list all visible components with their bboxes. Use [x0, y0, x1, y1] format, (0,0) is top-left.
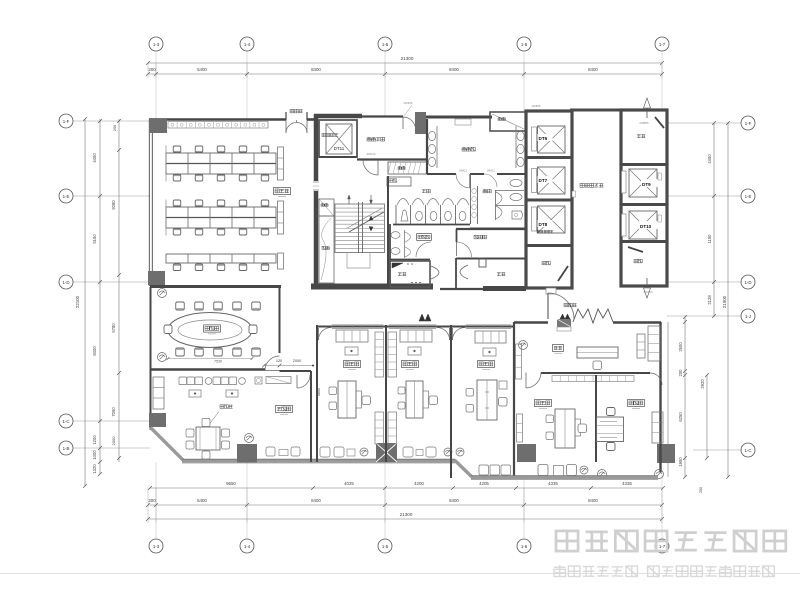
svg-text:1150: 1150: [707, 234, 712, 244]
svg-text:1-3: 1-3: [153, 544, 160, 549]
svg-text:2920: 2920: [700, 379, 705, 389]
svg-text:JPA9C5: JPA9C5: [643, 290, 653, 294]
svg-text:2W625: 2W625: [404, 101, 413, 105]
svg-text:DT6: DT6: [539, 136, 548, 141]
svg-text:22100: 22100: [75, 295, 80, 308]
svg-text:200: 200: [148, 67, 156, 72]
svg-text:DT8: DT8: [539, 222, 548, 227]
svg-text:4025: 4025: [344, 481, 354, 486]
svg-text:2WB25: 2WB25: [639, 121, 649, 125]
svg-text:1-F: 1-F: [63, 119, 70, 124]
svg-text:DT10: DT10: [640, 224, 652, 229]
svg-text:5150: 5150: [92, 234, 97, 244]
svg-text:2000: 2000: [293, 359, 301, 363]
svg-text:8400: 8400: [311, 67, 321, 72]
svg-text:5400: 5400: [197, 498, 207, 503]
svg-text:DT11: DT11: [334, 146, 345, 151]
svg-text:200: 200: [113, 125, 117, 131]
svg-text:8400: 8400: [588, 67, 598, 72]
svg-text:1-E: 1-E: [63, 194, 70, 199]
svg-text:1-6: 1-6: [521, 42, 528, 47]
svg-text:DT9: DT9: [642, 182, 651, 187]
svg-text:4450: 4450: [92, 153, 97, 163]
svg-text:1-B: 1-B: [63, 446, 70, 451]
svg-text:8400: 8400: [449, 67, 459, 72]
svg-text:2W825: 2W825: [532, 104, 541, 108]
svg-text:1-6: 1-6: [521, 544, 528, 549]
svg-text:1320: 1320: [92, 464, 97, 474]
svg-text:1-4: 1-4: [244, 42, 251, 47]
svg-text:1200: 1200: [92, 435, 97, 445]
svg-text:7050: 7050: [111, 407, 116, 417]
svg-text:8400: 8400: [92, 346, 97, 356]
svg-text:1950: 1950: [678, 457, 683, 467]
svg-text:WM21: WM21: [459, 169, 468, 173]
svg-text:1-E: 1-E: [745, 194, 752, 199]
svg-text:1-D: 1-D: [744, 280, 751, 285]
svg-text:21900: 21900: [722, 295, 727, 308]
svg-text:4335: 4335: [548, 481, 558, 486]
svg-text:6250: 6250: [678, 412, 683, 422]
svg-text:1-J: 1-J: [745, 314, 751, 319]
svg-text:WM21: WM21: [487, 169, 496, 173]
svg-text:8400: 8400: [311, 498, 321, 503]
svg-text:1-4: 1-4: [244, 544, 251, 549]
svg-text:5780: 5780: [111, 323, 116, 333]
svg-text:8400: 8400: [449, 498, 459, 503]
svg-text:2128: 2128: [707, 295, 712, 305]
svg-text:9280: 9280: [111, 200, 116, 210]
svg-text:1-3: 1-3: [153, 42, 160, 47]
svg-text:1000: 1000: [92, 450, 97, 460]
svg-text:4200: 4200: [414, 481, 424, 486]
svg-text:2600: 2600: [678, 342, 683, 352]
svg-text:1-5: 1-5: [382, 42, 389, 47]
svg-text:120: 120: [276, 359, 282, 363]
svg-text:1-5: 1-5: [382, 544, 389, 549]
svg-text:8400: 8400: [588, 498, 598, 503]
svg-text:4335: 4335: [622, 481, 632, 486]
svg-text:4205: 4205: [479, 481, 489, 486]
svg-text:5400: 5400: [197, 67, 207, 72]
svg-text:200: 200: [678, 369, 683, 377]
svg-text:4450: 4450: [707, 154, 712, 164]
svg-text:1-F: 1-F: [745, 121, 752, 126]
svg-text:1-D: 1-D: [62, 280, 69, 285]
svg-text:1-C: 1-C: [62, 419, 69, 424]
svg-text:9650: 9650: [226, 481, 236, 486]
svg-text:21300: 21300: [400, 512, 413, 517]
svg-text:1-C: 1-C: [744, 448, 751, 453]
svg-text:2000: 2000: [111, 436, 116, 446]
svg-text:ZW113: ZW113: [367, 152, 376, 156]
svg-text:200: 200: [699, 487, 703, 493]
svg-text:1-7: 1-7: [659, 544, 666, 549]
svg-text:1-7: 1-7: [659, 42, 666, 47]
svg-text:DT7: DT7: [539, 178, 548, 183]
svg-text:200: 200: [148, 498, 156, 503]
svg-text:7530: 7530: [214, 360, 222, 364]
svg-text:21300: 21300: [401, 56, 414, 61]
